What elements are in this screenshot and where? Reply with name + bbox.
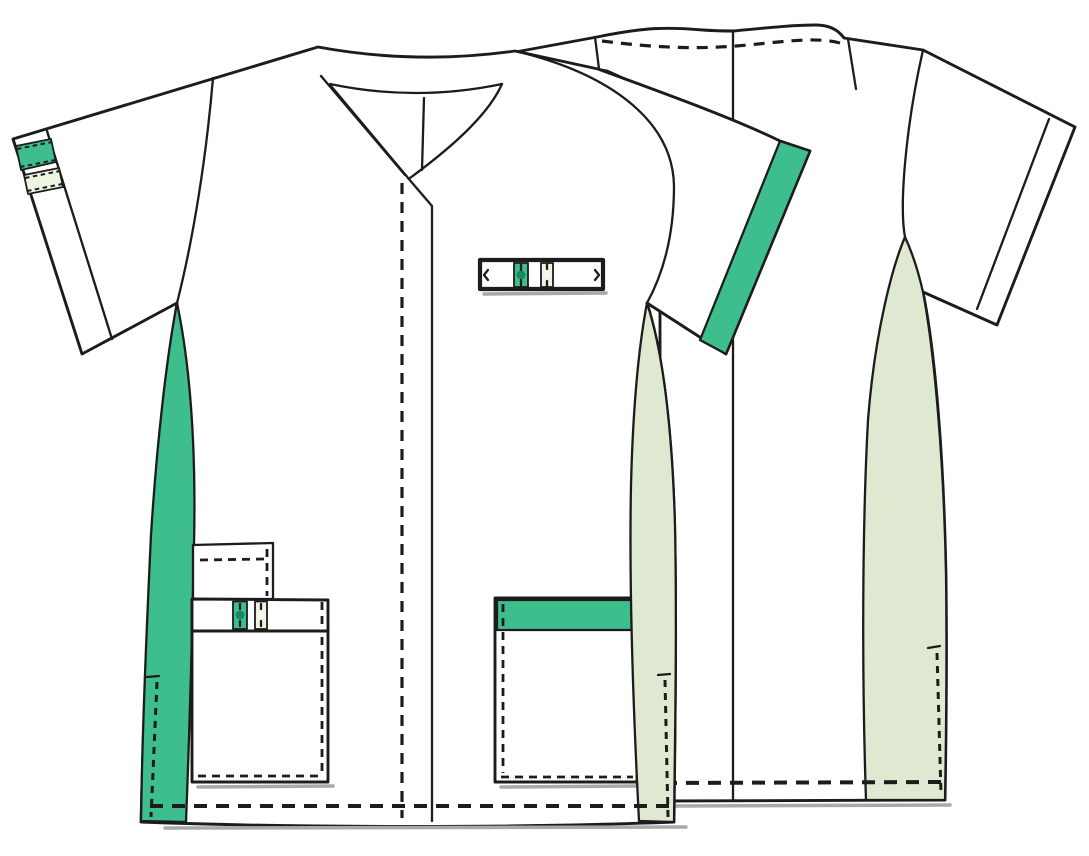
vent-notch-left [147, 676, 159, 677]
garment-flat-illustration [0, 0, 1089, 856]
front-side-panel-left [141, 303, 194, 822]
chest-tab-dot-green [517, 271, 526, 280]
pocket-right-band [497, 600, 635, 630]
pocket-band-dot-green [236, 611, 245, 620]
chest-tab [480, 260, 606, 294]
pocket-right-shadow [501, 786, 641, 787]
pocket-left-shadow [198, 786, 333, 787]
pocket-left-body [192, 631, 328, 782]
vent-notch-right [658, 674, 670, 675]
front-bottom-shadow [165, 827, 686, 828]
chest-tab-dot-pale [543, 271, 551, 279]
back-bottom-shadow [675, 805, 950, 806]
chest-tab-shadow [484, 293, 606, 294]
pocket-band-dot-pale [257, 611, 265, 619]
pocket-left-flap [193, 543, 273, 599]
garment-flat-svg [0, 0, 1089, 856]
